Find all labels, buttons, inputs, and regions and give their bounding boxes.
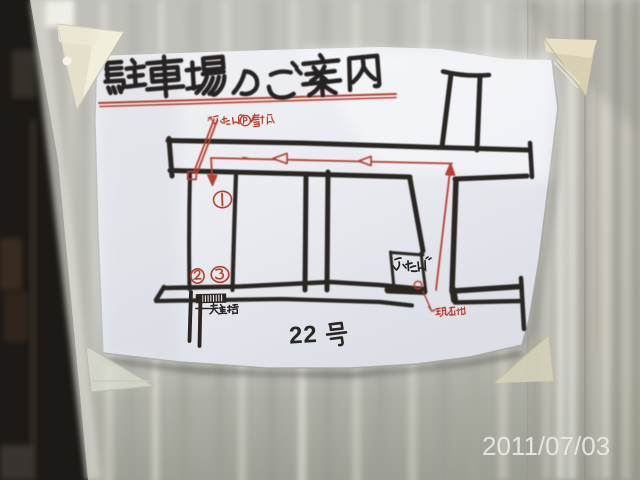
svg-text:22: 22: [288, 321, 318, 350]
svg-text:2011/07/03: 2011/07/03: [482, 431, 610, 461]
